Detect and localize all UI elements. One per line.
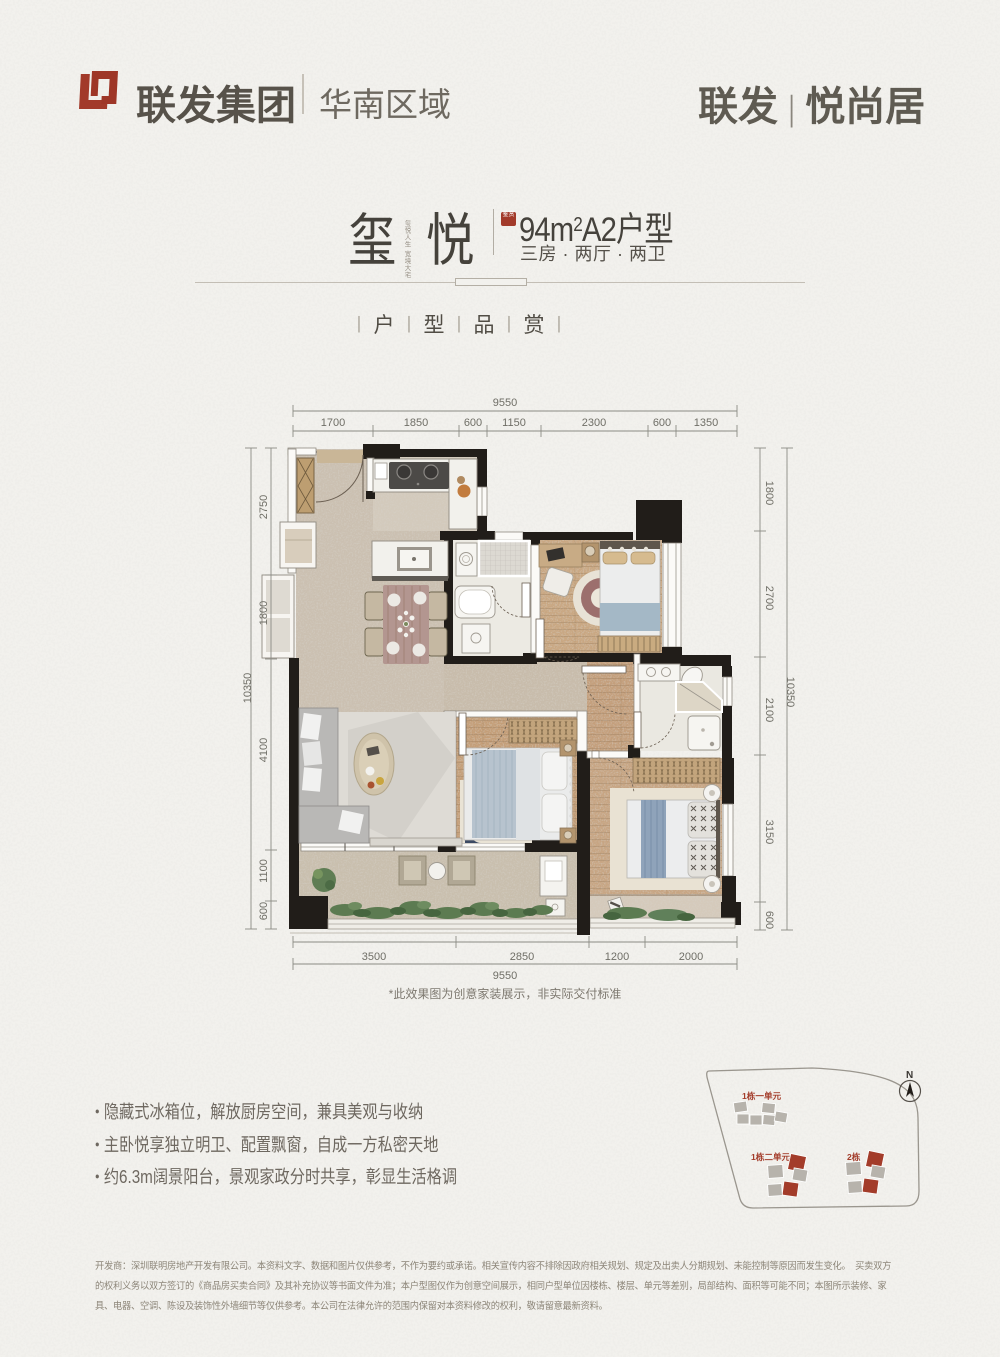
svg-text:1700: 1700 <box>321 417 345 429</box>
svg-text:4100: 4100 <box>258 738 270 762</box>
svg-text:3500: 3500 <box>362 951 386 963</box>
svg-text:9550: 9550 <box>493 397 517 409</box>
svg-text:600: 600 <box>464 417 482 429</box>
svg-text:1200: 1200 <box>605 951 629 963</box>
svg-text:3150: 3150 <box>763 820 775 844</box>
svg-text:2000: 2000 <box>679 951 703 963</box>
svg-text:2100: 2100 <box>763 698 775 722</box>
svg-text:1800: 1800 <box>258 601 270 625</box>
svg-text:10350: 10350 <box>242 673 254 704</box>
svg-text:2栋: 2栋 <box>847 1151 861 1162</box>
svg-text:1栋一单元: 1栋一单元 <box>742 1090 782 1101</box>
svg-text:1100: 1100 <box>258 859 270 883</box>
svg-text:1350: 1350 <box>694 417 718 429</box>
svg-text:10350: 10350 <box>784 677 796 708</box>
svg-text:2750: 2750 <box>258 495 270 519</box>
svg-text:2700: 2700 <box>763 586 775 610</box>
svg-text:600: 600 <box>653 417 671 429</box>
svg-text:1800: 1800 <box>763 481 775 505</box>
svg-text:2850: 2850 <box>510 951 534 963</box>
svg-text:1栋二单元: 1栋二单元 <box>751 1151 791 1162</box>
svg-text:N: N <box>906 1070 913 1081</box>
svg-text:600: 600 <box>763 911 775 929</box>
svg-text:600: 600 <box>258 902 270 920</box>
svg-text:9550: 9550 <box>493 970 517 982</box>
svg-text:2300: 2300 <box>582 417 606 429</box>
svg-text:1150: 1150 <box>502 417 526 429</box>
svg-text:1850: 1850 <box>404 417 428 429</box>
